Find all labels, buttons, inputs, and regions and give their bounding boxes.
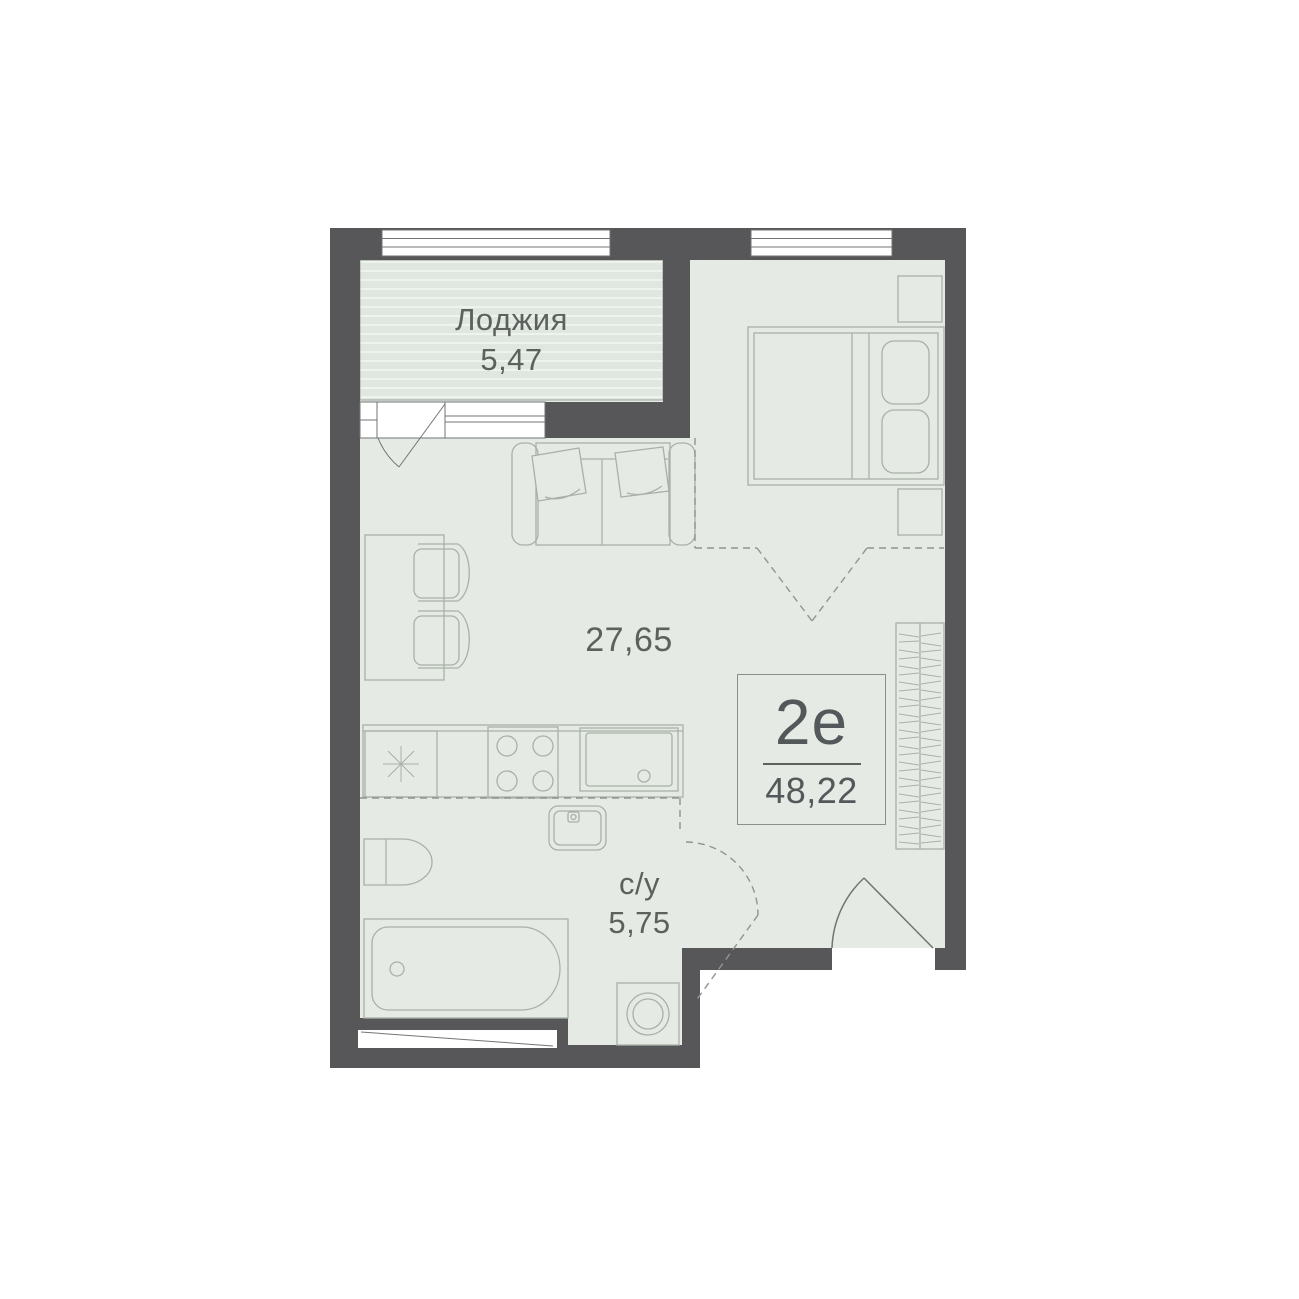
- loggia-name: Лоджия: [360, 300, 663, 340]
- unit-info-box: 2е 48,22: [737, 674, 886, 825]
- facade-window-right: [751, 230, 892, 256]
- unit-type: 2е: [775, 690, 848, 754]
- floor-plan-page: Лоджия 5,47 27,65 2е 48,22 с/у 5,75: [0, 0, 1299, 1299]
- bathroom-label: с/у 5,75: [557, 864, 722, 942]
- living-area: 27,65: [529, 621, 729, 660]
- bathroom-area: 5,75: [557, 903, 722, 942]
- sofa-pillow-left: [532, 448, 586, 501]
- unit-total-area: 48,22: [765, 773, 858, 809]
- loggia-area: 5,47: [360, 340, 663, 380]
- unit-divider: [763, 763, 861, 765]
- bottom-window-strip: [358, 1030, 557, 1048]
- facade-window-left: [382, 230, 610, 256]
- bathroom-name: с/у: [557, 864, 722, 903]
- snowflake-icon: [383, 746, 419, 782]
- sofa-pillow-right: [615, 447, 669, 497]
- loggia-label: Лоджия 5,47: [360, 300, 663, 380]
- living-area-label: 27,65: [529, 621, 729, 660]
